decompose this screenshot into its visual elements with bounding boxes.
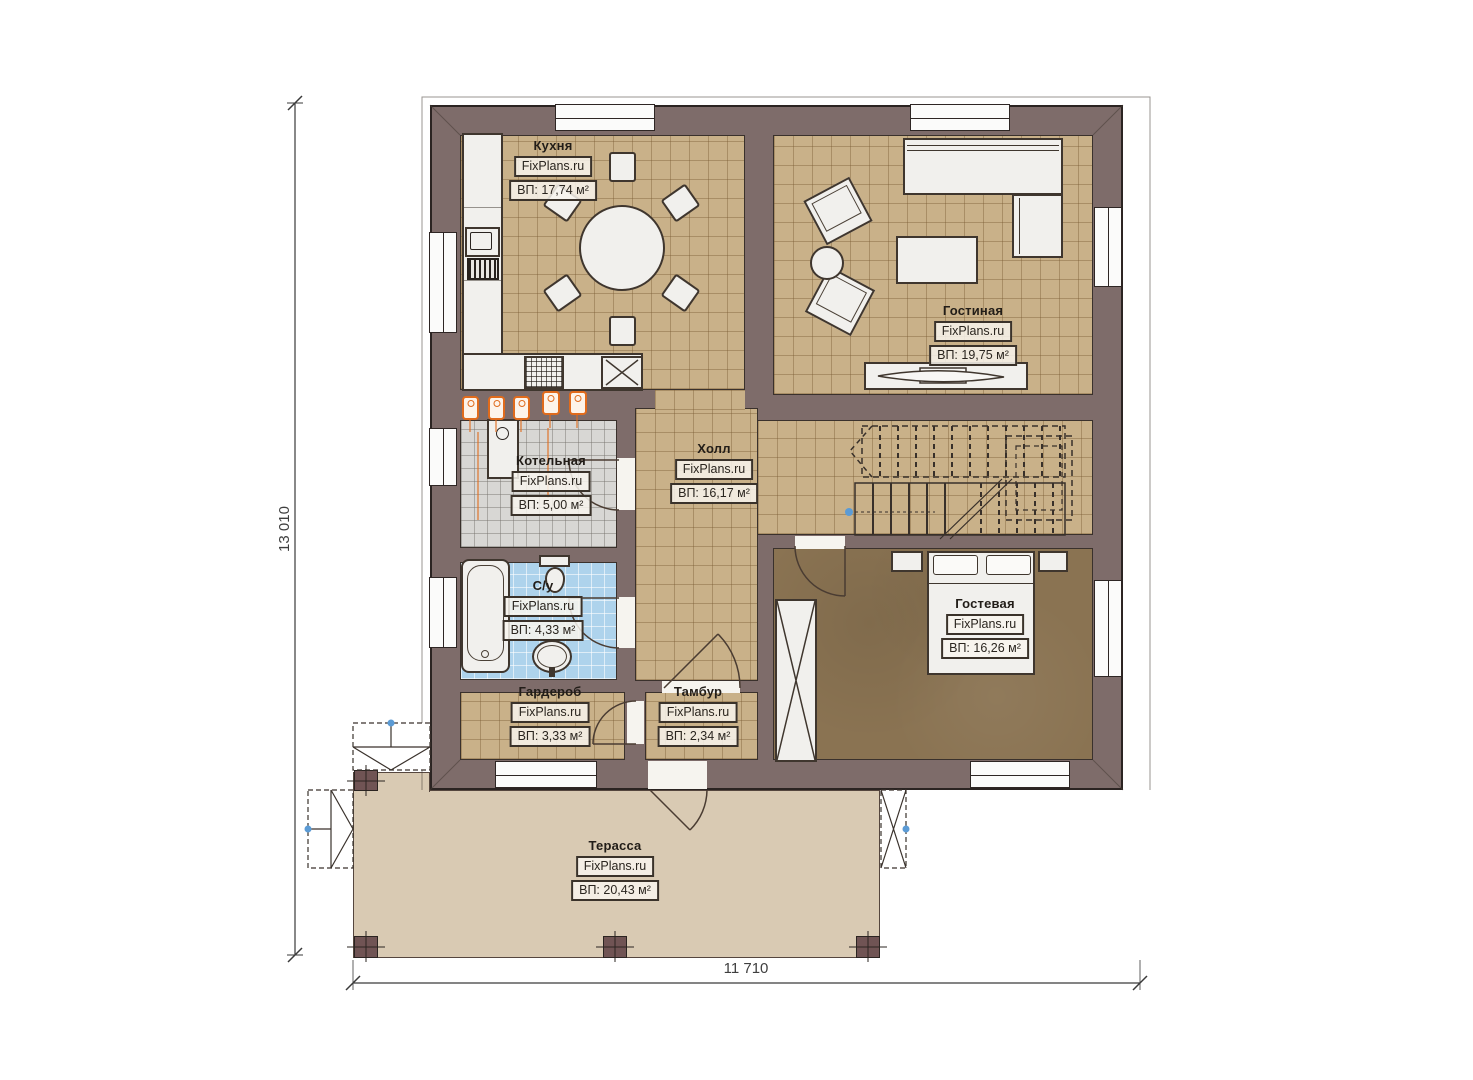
room-name: Гостевая bbox=[941, 596, 1029, 611]
floor-plan-canvas: 13 010 11 710 Кухня FixPlans.ru ВП: 17,7… bbox=[0, 0, 1473, 1080]
kitchen-sink-2 bbox=[601, 356, 643, 389]
dining-chair bbox=[609, 152, 636, 182]
room-label-living: Гостиная FixPlans.ru ВП: 19,75 м² bbox=[929, 303, 1017, 366]
nightstand bbox=[891, 551, 923, 572]
room-name: Котельная bbox=[511, 453, 592, 468]
terrace-post bbox=[603, 936, 627, 958]
area-label: ВП: 16,17 м² bbox=[670, 483, 758, 504]
room-label-tambour: Тамбур FixPlans.ru ВП: 2,34 м² bbox=[658, 684, 739, 747]
heating-manifold-icon bbox=[569, 391, 587, 415]
area-label: ВП: 16,26 м² bbox=[941, 638, 1029, 659]
window-guest-right bbox=[1094, 580, 1122, 677]
dishwasher bbox=[467, 258, 499, 280]
brand-label: FixPlans.ru bbox=[511, 702, 590, 723]
room-name: С/у bbox=[503, 578, 584, 593]
window-boiler-left bbox=[429, 428, 457, 486]
hall-stairs-floor bbox=[758, 420, 1093, 535]
area-label: ВП: 5,00 м² bbox=[511, 495, 592, 516]
side-table bbox=[810, 246, 844, 280]
coffee-table bbox=[896, 236, 978, 284]
brand-label: FixPlans.ru bbox=[934, 321, 1013, 342]
bathtub-drain bbox=[481, 650, 489, 658]
toilet-tank bbox=[539, 555, 570, 567]
kitchen-sink-basin bbox=[470, 232, 492, 250]
window-guest-bottom bbox=[970, 761, 1070, 788]
tv-stand bbox=[864, 362, 1028, 390]
window-wardrobe-bottom bbox=[495, 761, 597, 788]
heating-manifold-icon bbox=[488, 396, 505, 420]
brand-label: FixPlans.ru bbox=[512, 471, 591, 492]
area-label: ВП: 20,43 м² bbox=[571, 880, 659, 901]
heating-manifold-icon bbox=[462, 396, 479, 420]
bathtub-inner bbox=[467, 565, 504, 661]
window-living-top bbox=[910, 104, 1010, 131]
sofa-chaise bbox=[1012, 194, 1063, 258]
armchair-seat bbox=[816, 274, 867, 323]
bathroom-sink-inner bbox=[537, 645, 567, 668]
door-opening-wardrobe bbox=[627, 701, 644, 744]
room-label-bathroom: С/у FixPlans.ru ВП: 4,33 м² bbox=[503, 578, 584, 641]
pillow bbox=[986, 555, 1031, 575]
area-label: ВП: 19,75 м² bbox=[929, 345, 1017, 366]
door-opening-guest bbox=[795, 536, 845, 549]
room-label-hall: Холл FixPlans.ru ВП: 16,17 м² bbox=[670, 441, 758, 504]
stove bbox=[524, 356, 564, 389]
sofa bbox=[903, 138, 1063, 195]
nightstand bbox=[1038, 551, 1068, 572]
brand-label: FixPlans.ru bbox=[659, 702, 738, 723]
heating-manifold-icon bbox=[513, 396, 530, 420]
dining-chair bbox=[609, 316, 636, 346]
room-label-wardrobe: Гардероб FixPlans.ru ВП: 3,33 м² bbox=[510, 684, 591, 747]
dimension-vertical-label: 13 010 bbox=[276, 506, 293, 552]
brand-label: FixPlans.ru bbox=[675, 459, 754, 480]
heating-manifold-icon bbox=[542, 391, 560, 415]
terrace-post bbox=[856, 936, 880, 958]
window-bath-left bbox=[429, 577, 457, 648]
room-name: Кухня bbox=[509, 138, 597, 153]
area-label: ВП: 2,34 м² bbox=[658, 726, 739, 747]
room-label-kitchen: Кухня FixPlans.ru ВП: 17,74 м² bbox=[509, 138, 597, 201]
room-label-boiler: Котельная FixPlans.ru ВП: 5,00 м² bbox=[511, 453, 592, 516]
pillow bbox=[933, 555, 978, 575]
room-label-terrace: Терасса FixPlans.ru ВП: 20,43 м² bbox=[571, 838, 659, 901]
blanket-line bbox=[928, 583, 1034, 584]
room-name: Холл bbox=[670, 441, 758, 456]
door-opening-boiler bbox=[617, 458, 635, 510]
room-name: Терасса bbox=[571, 838, 659, 853]
window-kitchen-top bbox=[555, 104, 655, 131]
armchair-seat bbox=[811, 185, 861, 232]
brand-label: FixPlans.ru bbox=[576, 856, 655, 877]
dining-table bbox=[579, 205, 665, 291]
room-name: Гостиная bbox=[929, 303, 1017, 318]
door-opening-bathroom bbox=[617, 597, 635, 648]
room-name: Тамбур bbox=[658, 684, 739, 699]
area-label: ВП: 4,33 м² bbox=[503, 620, 584, 641]
window-living-right bbox=[1094, 207, 1122, 287]
bathroom-sink-tap bbox=[549, 667, 555, 677]
kitchen-hall-opening bbox=[655, 390, 745, 410]
terrace-post bbox=[354, 936, 378, 958]
window-kitchen-left bbox=[429, 232, 457, 333]
guest-wardrobe bbox=[775, 599, 817, 762]
boiler-dial bbox=[496, 427, 509, 440]
area-label: ВП: 3,33 м² bbox=[510, 726, 591, 747]
room-name: Гардероб bbox=[510, 684, 591, 699]
area-label: ВП: 17,74 м² bbox=[509, 180, 597, 201]
dimension-horizontal-label: 11 710 bbox=[724, 960, 769, 977]
terrace-post bbox=[354, 770, 378, 791]
room-label-guest: Гостевая FixPlans.ru ВП: 16,26 м² bbox=[941, 596, 1029, 659]
brand-label: FixPlans.ru bbox=[514, 156, 593, 177]
door-opening-entrance bbox=[648, 761, 707, 789]
brand-label: FixPlans.ru bbox=[504, 596, 583, 617]
brand-label: FixPlans.ru bbox=[946, 614, 1025, 635]
